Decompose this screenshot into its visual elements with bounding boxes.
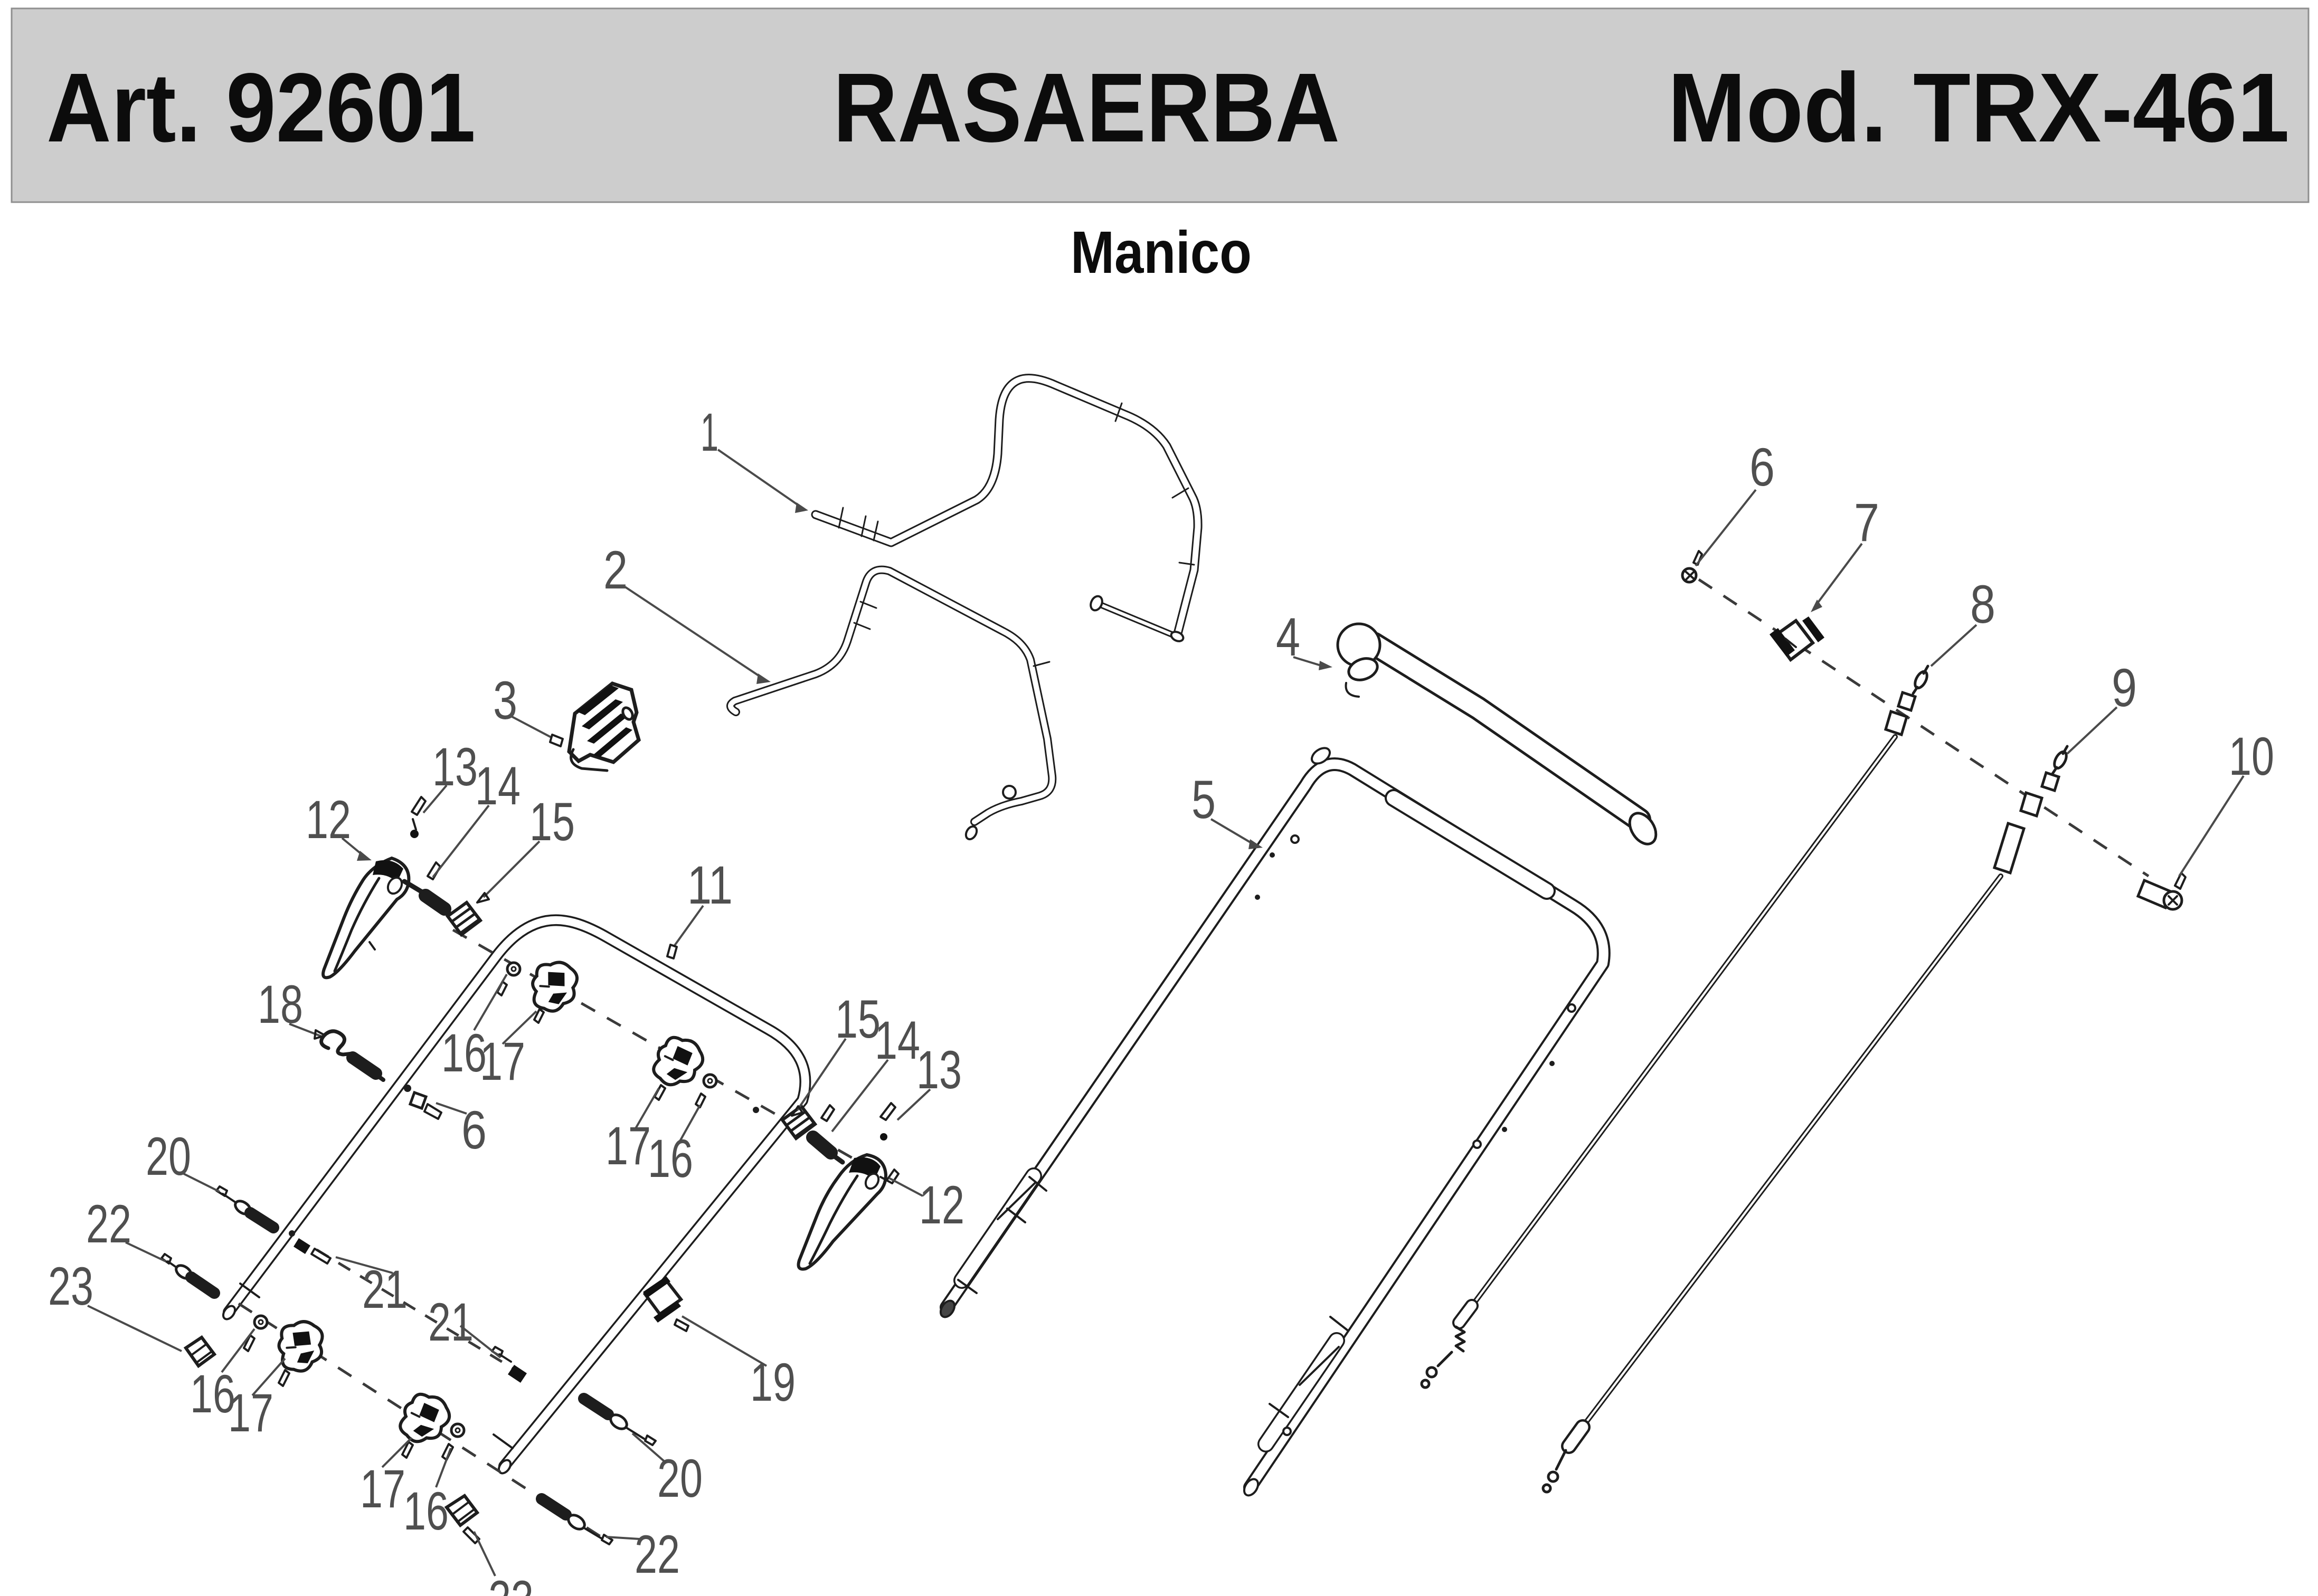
svg-text:7: 7 (1854, 492, 1879, 553)
svg-text:16: 16 (648, 1128, 693, 1189)
svg-text:20: 20 (146, 1126, 191, 1186)
svg-text:18: 18 (258, 974, 303, 1034)
svg-text:2: 2 (603, 540, 628, 600)
svg-text:8: 8 (1970, 574, 1995, 634)
svg-text:22: 22 (635, 1524, 680, 1584)
svg-text:13: 13 (432, 737, 478, 797)
svg-text:14: 14 (875, 1010, 920, 1070)
svg-text:13: 13 (916, 1040, 962, 1100)
svg-text:Manico: Manico (1071, 219, 1252, 286)
svg-text:15: 15 (835, 989, 881, 1049)
svg-text:14: 14 (475, 756, 521, 816)
svg-text:Art. 92601: Art. 92601 (46, 53, 476, 163)
svg-text:21: 21 (428, 1292, 474, 1352)
svg-text:21: 21 (362, 1259, 408, 1319)
svg-text:15: 15 (529, 792, 575, 852)
svg-text:17: 17 (360, 1459, 405, 1519)
svg-text:Mod. TRX-461: Mod. TRX-461 (1668, 53, 2289, 163)
svg-text:1: 1 (701, 402, 718, 462)
svg-text:23: 23 (48, 1256, 93, 1316)
svg-text:16: 16 (403, 1481, 449, 1541)
svg-text:17: 17 (605, 1116, 651, 1176)
svg-text:11: 11 (687, 855, 733, 915)
svg-text:6: 6 (1749, 437, 1775, 497)
svg-text:20: 20 (657, 1448, 703, 1508)
svg-text:RASAERBA: RASAERBA (833, 53, 1340, 163)
svg-text:6: 6 (461, 1100, 487, 1160)
svg-text:22: 22 (86, 1194, 131, 1254)
svg-text:3: 3 (493, 670, 517, 730)
svg-text:12: 12 (919, 1175, 964, 1235)
svg-text:17: 17 (228, 1383, 273, 1443)
svg-text:17: 17 (480, 1031, 525, 1091)
svg-text:10: 10 (2229, 726, 2274, 786)
